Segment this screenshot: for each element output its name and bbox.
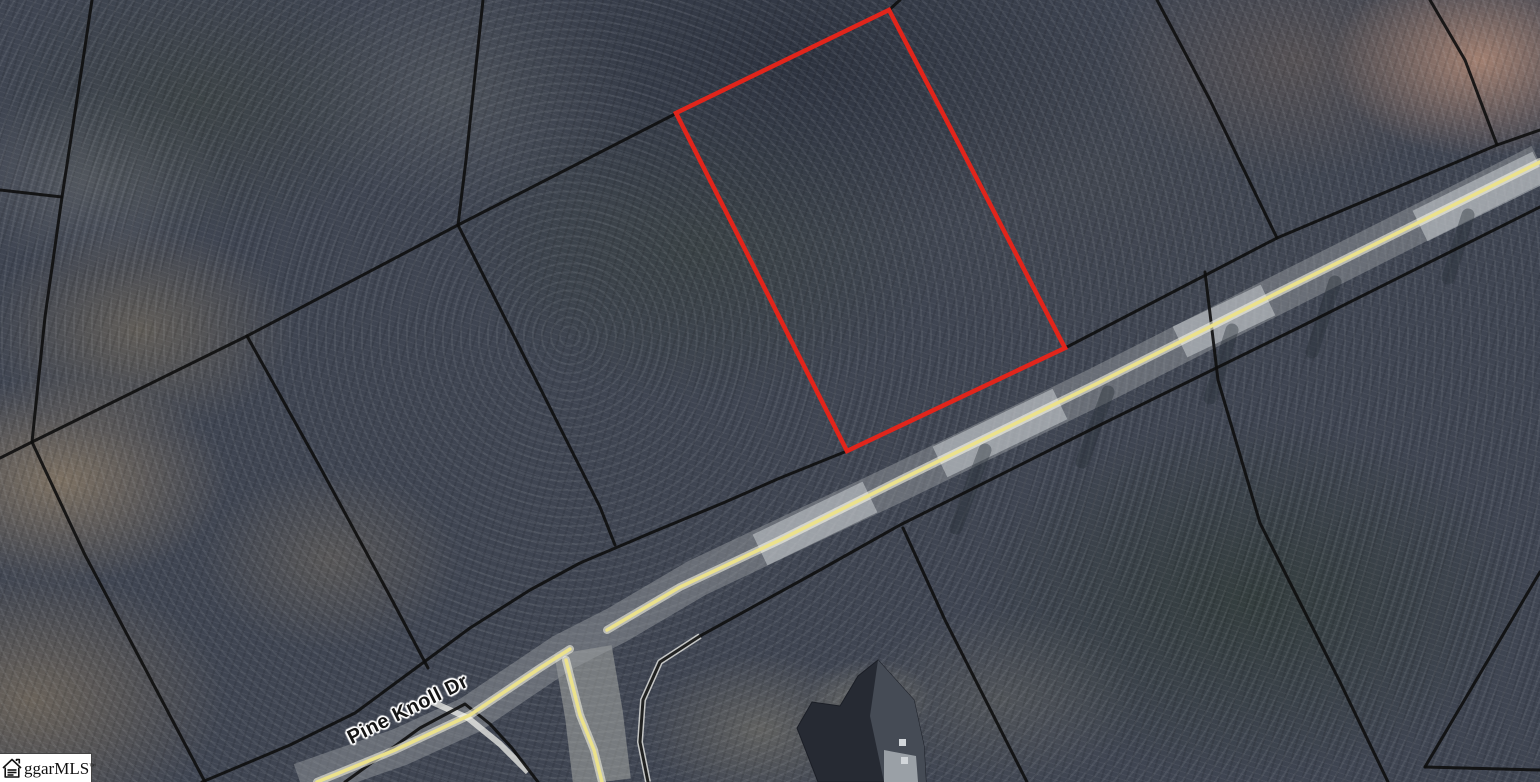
house-icon xyxy=(1,757,23,779)
house-roof-detail xyxy=(901,757,908,764)
road-lower-curb xyxy=(640,207,1540,782)
highlighted-parcel-outline xyxy=(676,10,1065,451)
parcel-boundary xyxy=(32,442,205,782)
parcel-boundary xyxy=(1430,0,1497,145)
curb-edge-white xyxy=(640,636,700,782)
parcel-boundary xyxy=(247,225,458,336)
mls-watermark: ggarMLS™ xyxy=(0,753,92,782)
parcel-boundary xyxy=(32,0,92,442)
parcel-boundary xyxy=(0,190,62,197)
aerial-parcel-map: Pine Knoll Dr ggarMLS™ xyxy=(0,0,1540,782)
house-roof-detail xyxy=(899,739,906,746)
watermark-text: ggarMLS™ xyxy=(24,760,96,777)
parcel-boundary xyxy=(458,113,677,225)
trademark-symbol: ™ xyxy=(89,762,96,770)
parcel-boundary xyxy=(1425,572,1540,767)
parcel-boundary xyxy=(458,225,615,545)
parcel-boundary xyxy=(1157,0,1277,238)
map-svg xyxy=(0,0,1540,782)
parcel-boundary xyxy=(247,336,428,668)
parcel-boundary xyxy=(458,0,483,225)
parcel-boundary xyxy=(1425,767,1540,770)
